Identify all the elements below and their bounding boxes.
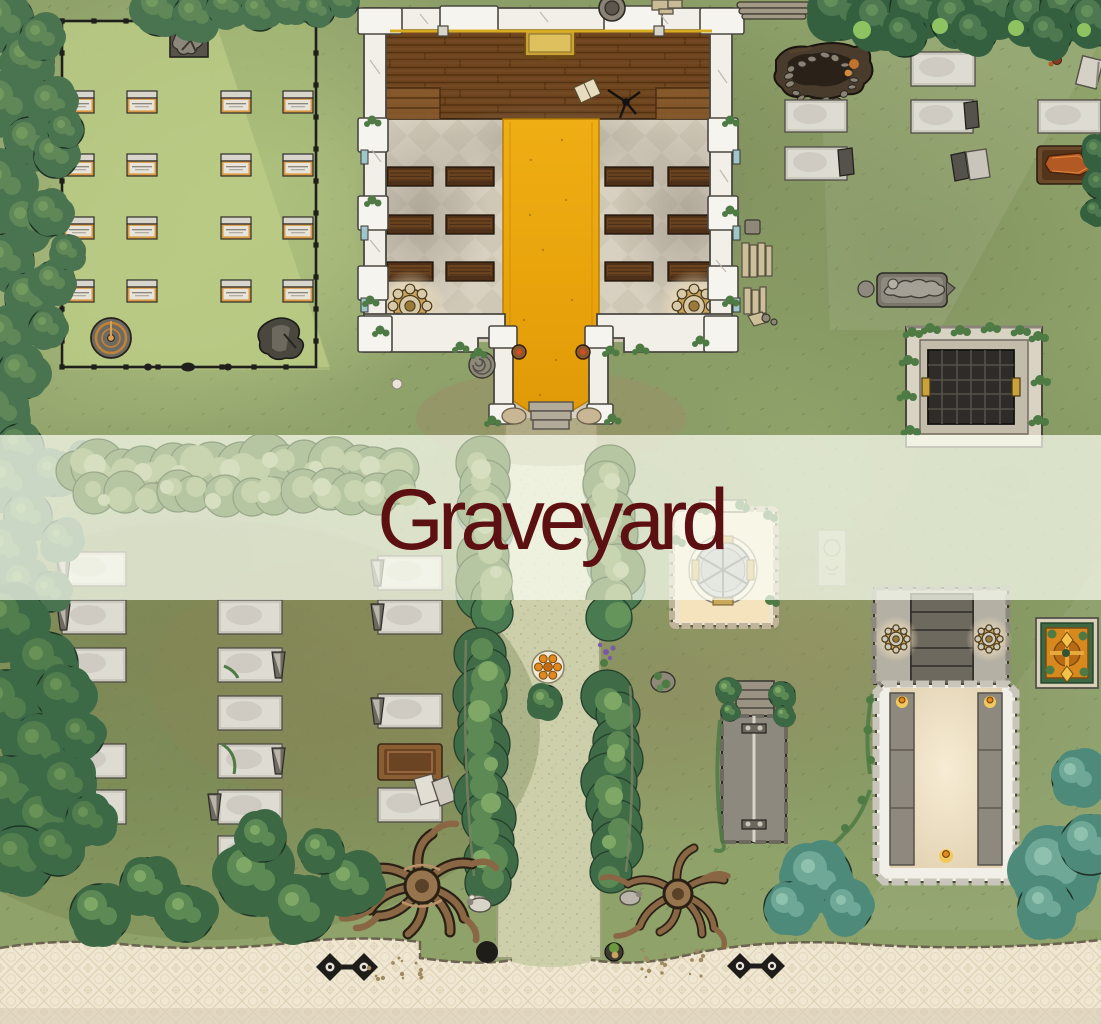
svg-text:Graveyard: Graveyard [377, 472, 724, 568]
